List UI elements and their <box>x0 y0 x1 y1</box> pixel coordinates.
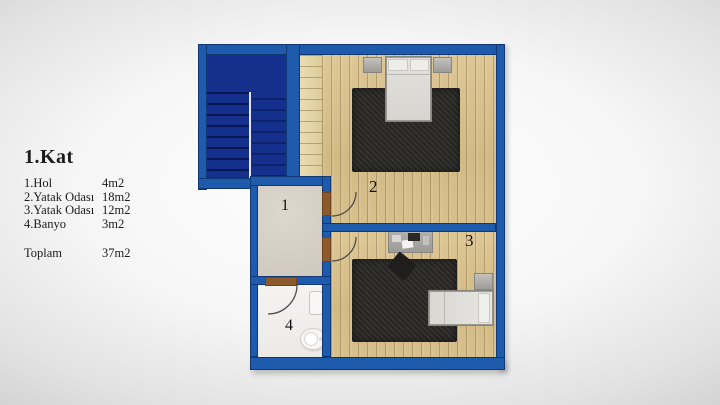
door-bathroom <box>265 277 297 286</box>
room-label-1: 1 <box>281 197 289 215</box>
room-label-2: 2 <box>369 177 378 197</box>
wall-bottom <box>250 357 505 370</box>
desk-laptop <box>408 233 420 241</box>
bed-pillow-left <box>388 59 408 71</box>
bed-pillow-right <box>410 59 429 71</box>
door-bedroom3 <box>322 237 331 262</box>
wall-stair-left <box>198 44 207 190</box>
blanket-fold-line <box>387 74 430 75</box>
desk <box>388 231 433 253</box>
stair-landing <box>300 55 322 176</box>
wall-top <box>198 44 505 55</box>
wall-stair-right <box>286 44 300 182</box>
wall-hall-left <box>250 176 258 357</box>
single-bed <box>428 290 494 326</box>
wall-hall-top <box>250 176 331 186</box>
stair-divider-line <box>249 92 251 178</box>
toilet-bowl <box>304 332 318 346</box>
sink <box>309 291 323 315</box>
floor-plan: 2 3 1 4 <box>0 0 720 405</box>
double-bed <box>385 56 432 122</box>
wall-right <box>496 44 505 370</box>
nightstand-right-bedroom2 <box>433 57 452 73</box>
room-label-4: 4 <box>285 317 293 335</box>
floorplan-page: 1.Kat 1.Hol 4m2 2.Yatak Odası 18m2 3.Yat… <box>0 0 720 405</box>
door-bedroom2 <box>322 192 331 216</box>
stair-treads-left <box>207 92 250 178</box>
wall-room-divider <box>322 223 496 232</box>
stair-treads-right <box>252 98 286 178</box>
single-bed-pillow <box>478 293 490 323</box>
room-label-3: 3 <box>465 231 474 251</box>
wall-stair-bottom <box>198 178 258 189</box>
desk-small-item <box>392 235 401 242</box>
nightstand-left-bedroom2 <box>363 57 382 73</box>
hall-floor <box>258 186 322 276</box>
staircase-area <box>207 55 286 178</box>
desk-item-right <box>423 236 429 245</box>
single-bed-fold-line <box>444 292 445 324</box>
nightstand-bedroom3 <box>474 273 493 290</box>
